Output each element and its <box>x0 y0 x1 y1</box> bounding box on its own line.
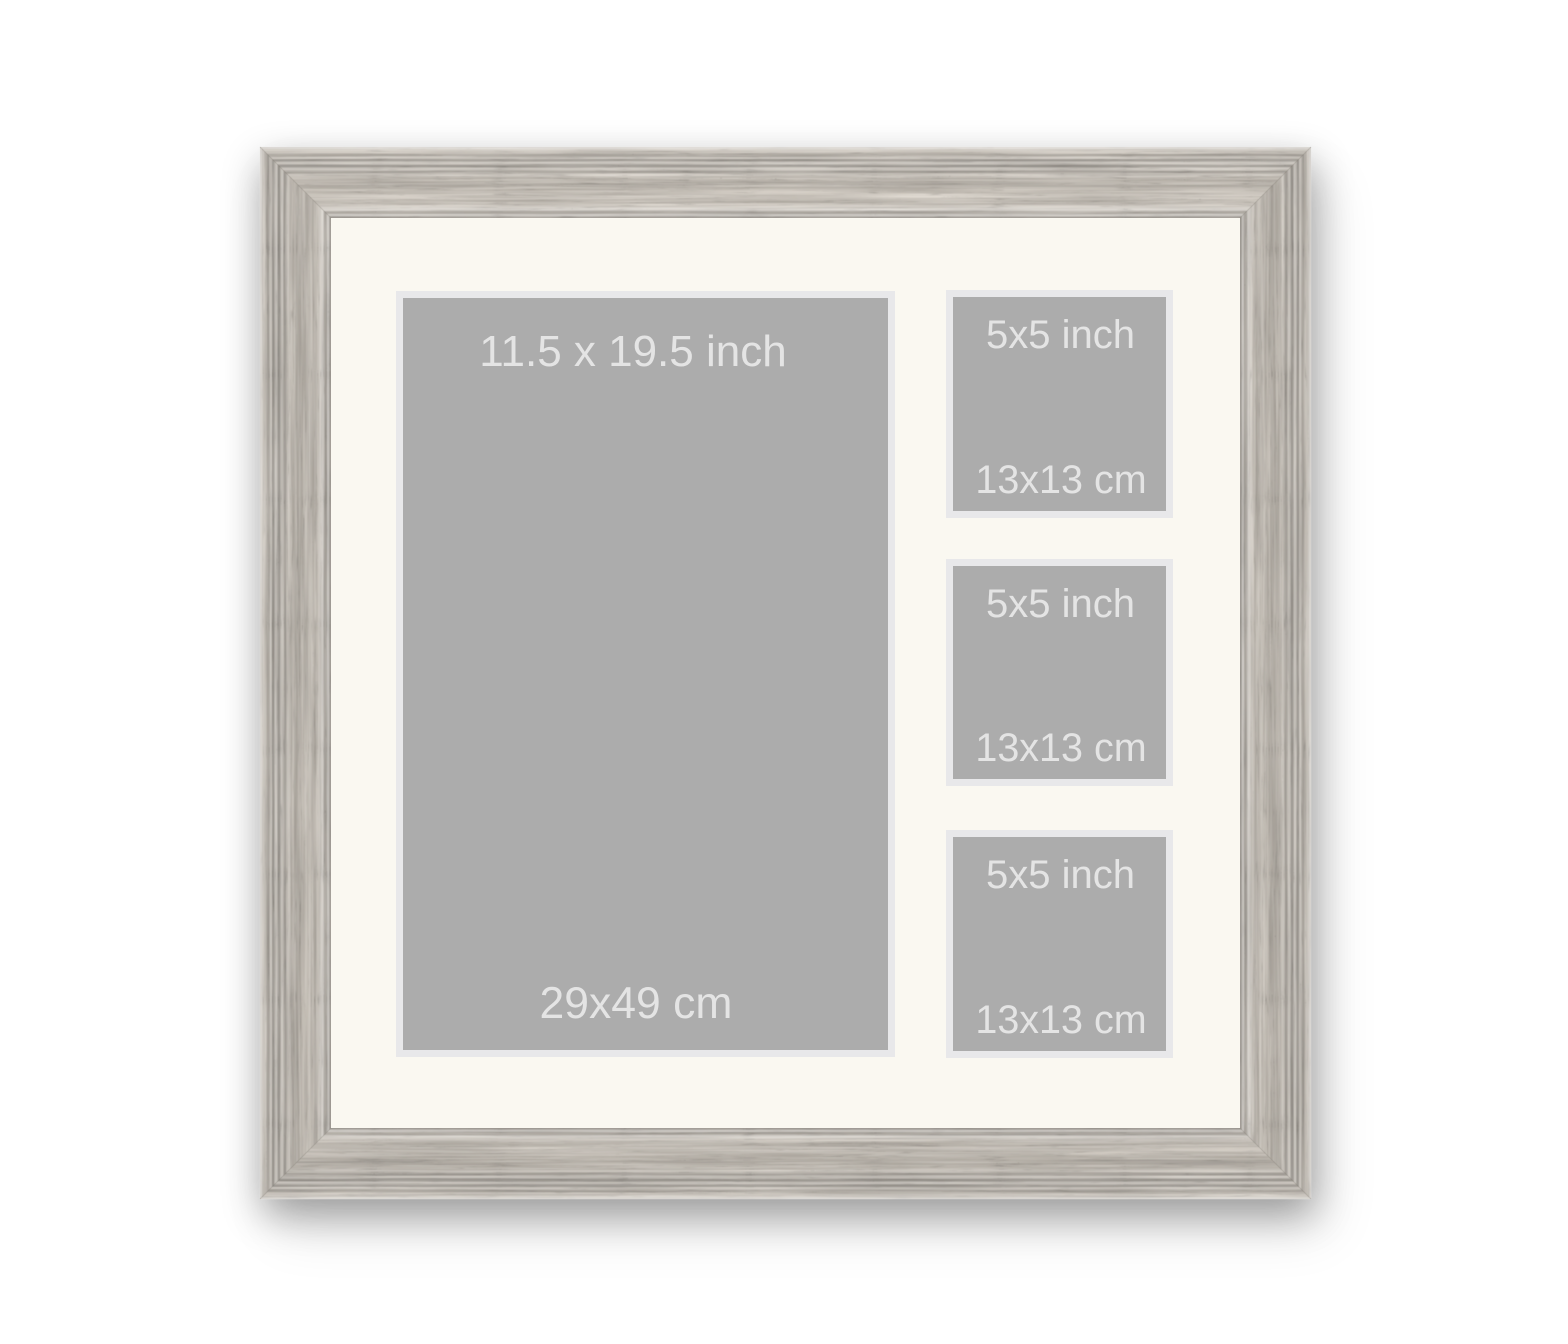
svg-text:29x49 cm: 29x49 cm <box>540 979 733 1028</box>
svg-text:13x13 cm: 13x13 cm <box>975 726 1146 770</box>
svg-text:11.5 x 19.5 inch: 11.5 x 19.5 inch <box>479 327 786 376</box>
svg-text:13x13 cm: 13x13 cm <box>975 458 1146 502</box>
svg-text:13x13 cm: 13x13 cm <box>975 998 1146 1042</box>
svg-text:5x5 inch: 5x5 inch <box>986 582 1135 626</box>
svg-text:5x5 inch: 5x5 inch <box>986 313 1135 357</box>
svg-text:5x5 inch: 5x5 inch <box>986 853 1135 897</box>
